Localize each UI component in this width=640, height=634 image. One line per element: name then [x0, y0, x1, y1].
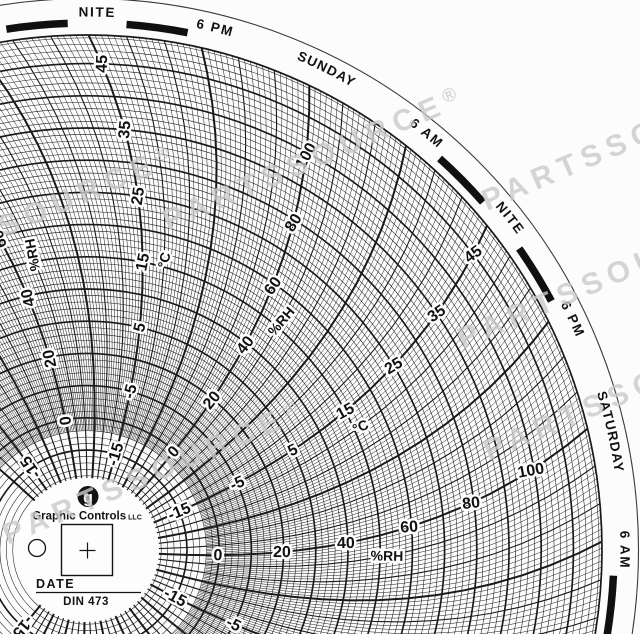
scale-number: 20	[273, 544, 291, 561]
rim-label: NITE	[79, 5, 117, 21]
scale-number: 35	[116, 120, 135, 139]
date-label: DATE	[36, 577, 75, 591]
model-number: DIN 473	[63, 596, 109, 608]
scale-number: 45	[94, 55, 112, 73]
rim-label-text: 6 AM	[617, 531, 632, 570]
rim-label: 6 AM	[617, 531, 632, 570]
chart-recorder-paper: -15-5515253545°C020406080100%RH-15-55152…	[0, 0, 640, 634]
brand-suffix: LLC	[128, 515, 142, 522]
chart-recorder-photo: -15-5515253545°C020406080100%RH-15-55152…	[0, 0, 640, 634]
scale-number: 80	[461, 494, 481, 513]
scale-number: 15	[133, 252, 153, 273]
scale-number: 40	[337, 535, 355, 552]
scale-unit-label: %RH	[370, 547, 403, 564]
scale-number: 20	[40, 348, 60, 369]
rim-label-text: NITE	[79, 5, 117, 21]
scale-number: 60	[400, 518, 419, 536]
scale-number: 0	[213, 547, 223, 564]
